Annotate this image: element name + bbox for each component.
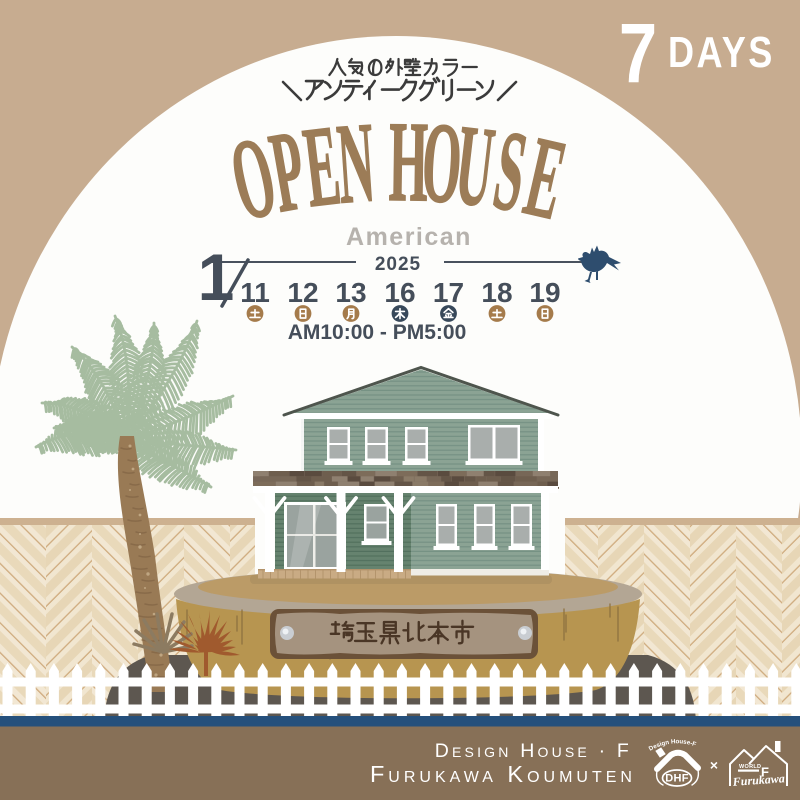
- svg-text:AM10:00 - PM5:00: AM10:00 - PM5:00: [288, 321, 467, 344]
- svg-text:WORLD: WORLD: [739, 764, 761, 770]
- svg-text:16: 16: [384, 277, 415, 308]
- svg-text:American: American: [346, 223, 472, 251]
- svg-text:7: 7: [619, 7, 657, 101]
- svg-text:Furukawa Koumuten: Furukawa Koumuten: [370, 761, 636, 787]
- svg-text:11: 11: [240, 277, 270, 308]
- svg-text:1: 1: [198, 240, 235, 314]
- svg-text:DHF: DHF: [665, 773, 689, 785]
- svg-text:19: 19: [529, 277, 560, 308]
- svg-text:DAYS: DAYS: [668, 28, 775, 77]
- svg-text:×: ×: [710, 757, 718, 773]
- svg-text:Design House · F: Design House · F: [435, 740, 632, 762]
- svg-text:12: 12: [287, 277, 318, 308]
- svg-text:2025: 2025: [375, 254, 421, 275]
- svg-text:18: 18: [481, 277, 512, 308]
- svg-text:13: 13: [335, 277, 366, 308]
- svg-text:17: 17: [433, 277, 464, 308]
